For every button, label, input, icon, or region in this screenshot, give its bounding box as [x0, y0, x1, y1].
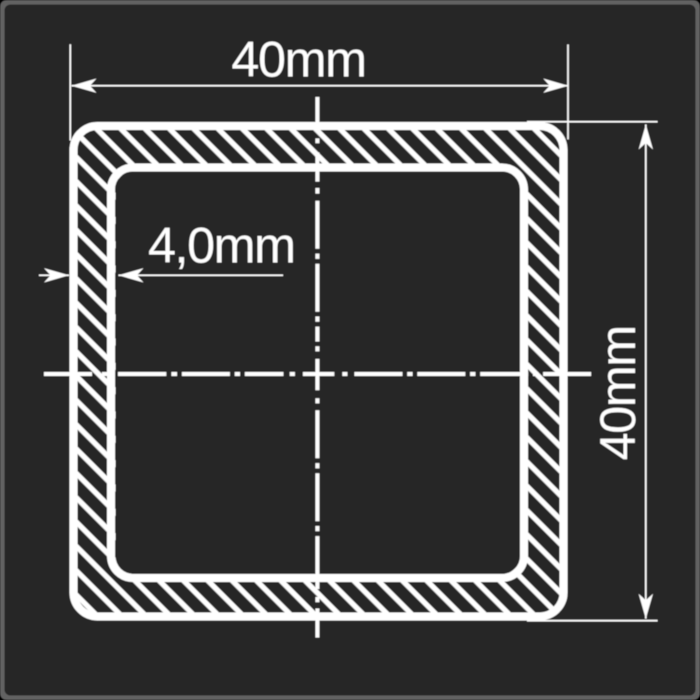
svg-text:40mm: 40mm: [589, 326, 646, 460]
svg-text:4,0mm: 4,0mm: [148, 217, 295, 274]
svg-text:40mm: 40mm: [231, 31, 365, 88]
